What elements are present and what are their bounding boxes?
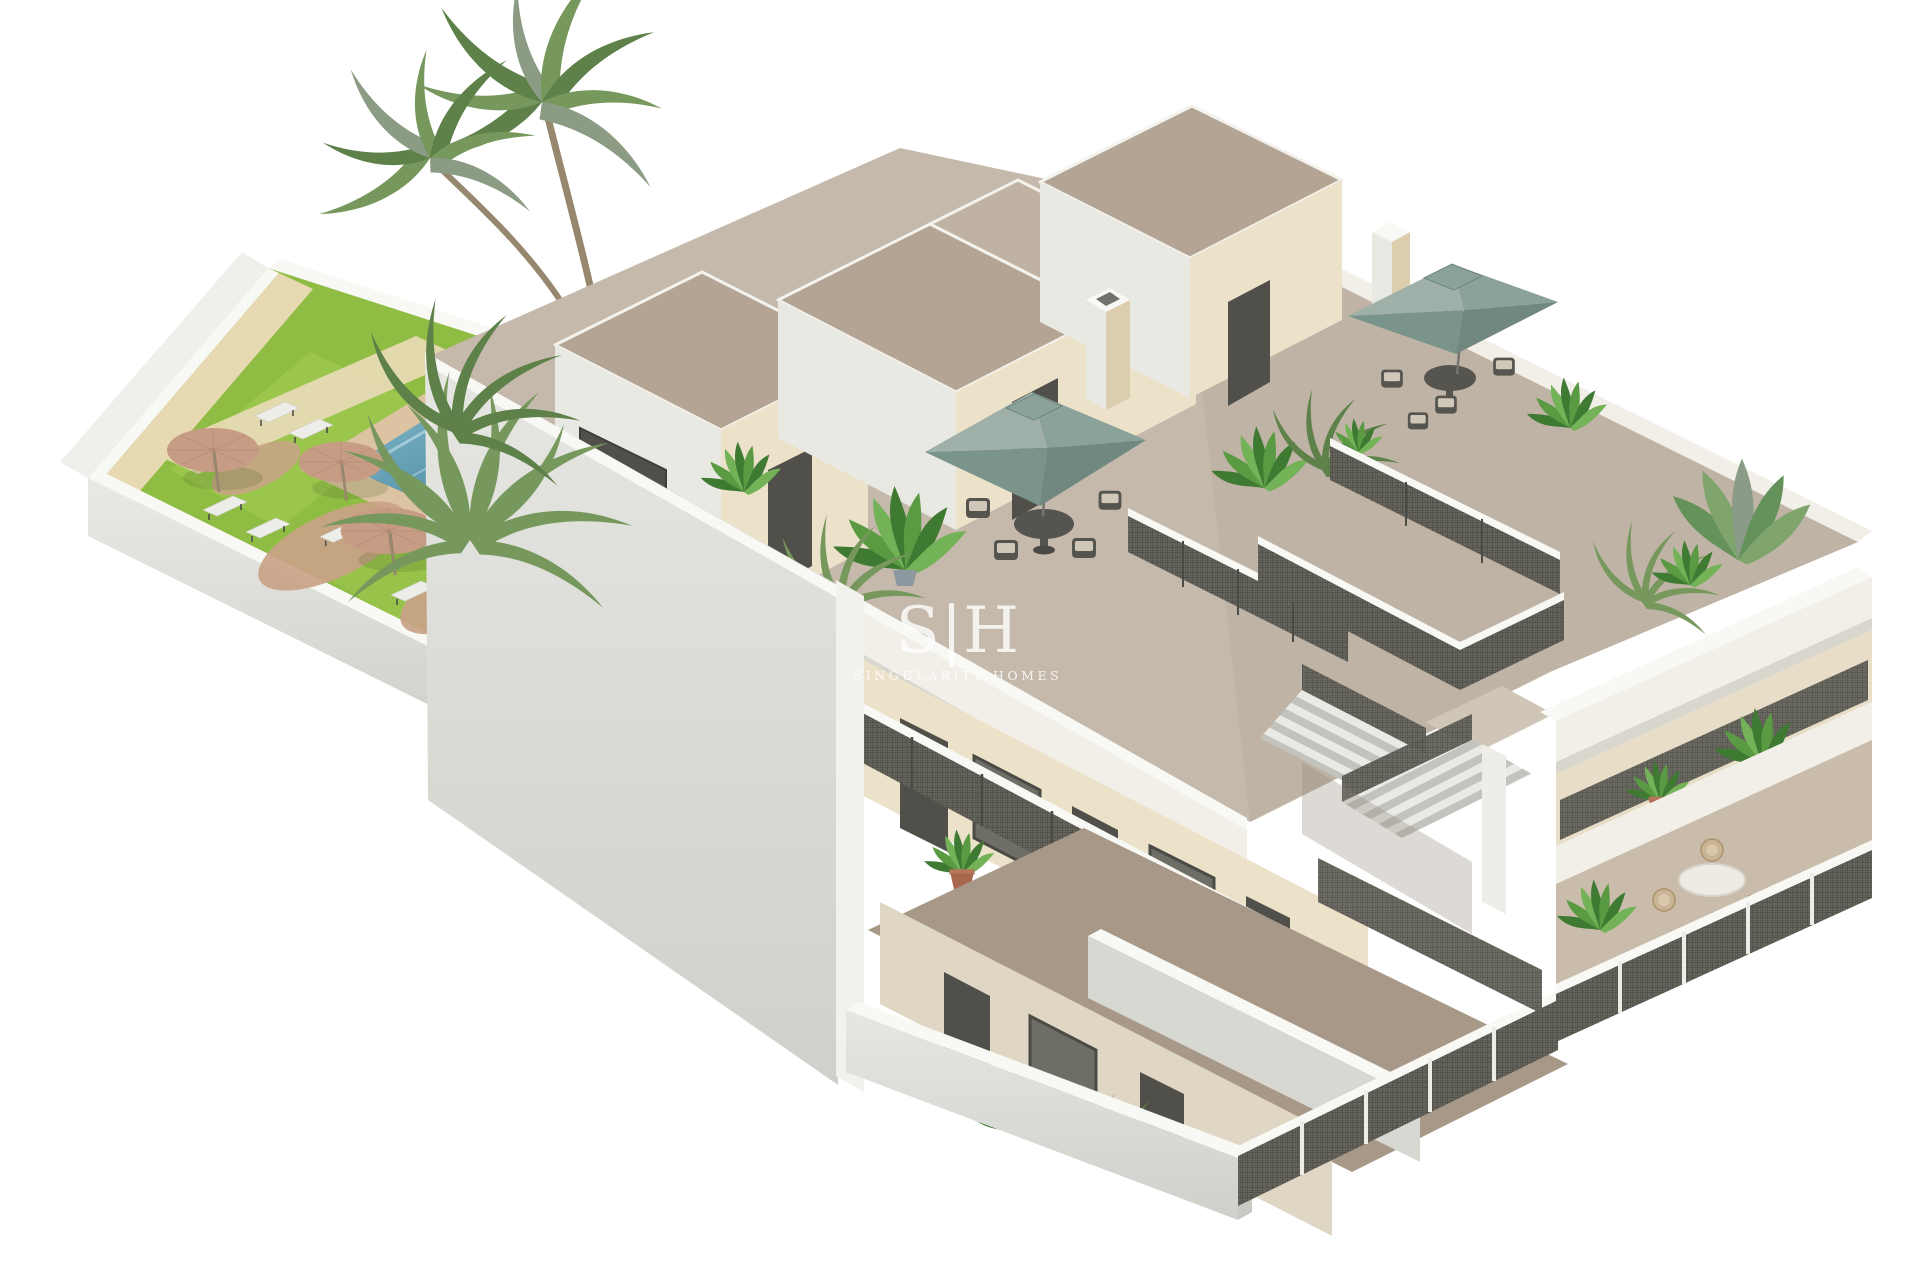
patio-table	[1679, 864, 1745, 896]
terrace-chair	[1072, 538, 1096, 558]
watermark-name: SINGULARITY HOMES	[854, 668, 1062, 683]
table-pedestal	[1040, 524, 1048, 548]
architectural-render: S|H SINGULARITY HOMES	[0, 0, 1920, 1280]
terrace-chair	[1435, 396, 1457, 414]
patio-chair	[1701, 839, 1723, 861]
terrace-chair	[1493, 358, 1515, 376]
palm-crown	[408, 0, 661, 210]
patio-chair	[1653, 889, 1675, 911]
terrace-chair	[1381, 370, 1403, 388]
table-base	[1033, 546, 1055, 555]
terrace-chair	[994, 540, 1018, 560]
watermark-monogram: S|H	[896, 594, 1020, 668]
terrace-chair	[1099, 491, 1122, 510]
terrace-chair	[1408, 412, 1428, 429]
stair-pillar	[1482, 744, 1506, 914]
table-pedestal	[1446, 378, 1453, 398]
chimney	[1086, 288, 1130, 410]
render-canvas: S|H SINGULARITY HOMES	[0, 0, 1920, 1280]
terrace-chair	[966, 498, 990, 518]
plant-pot	[893, 570, 917, 586]
